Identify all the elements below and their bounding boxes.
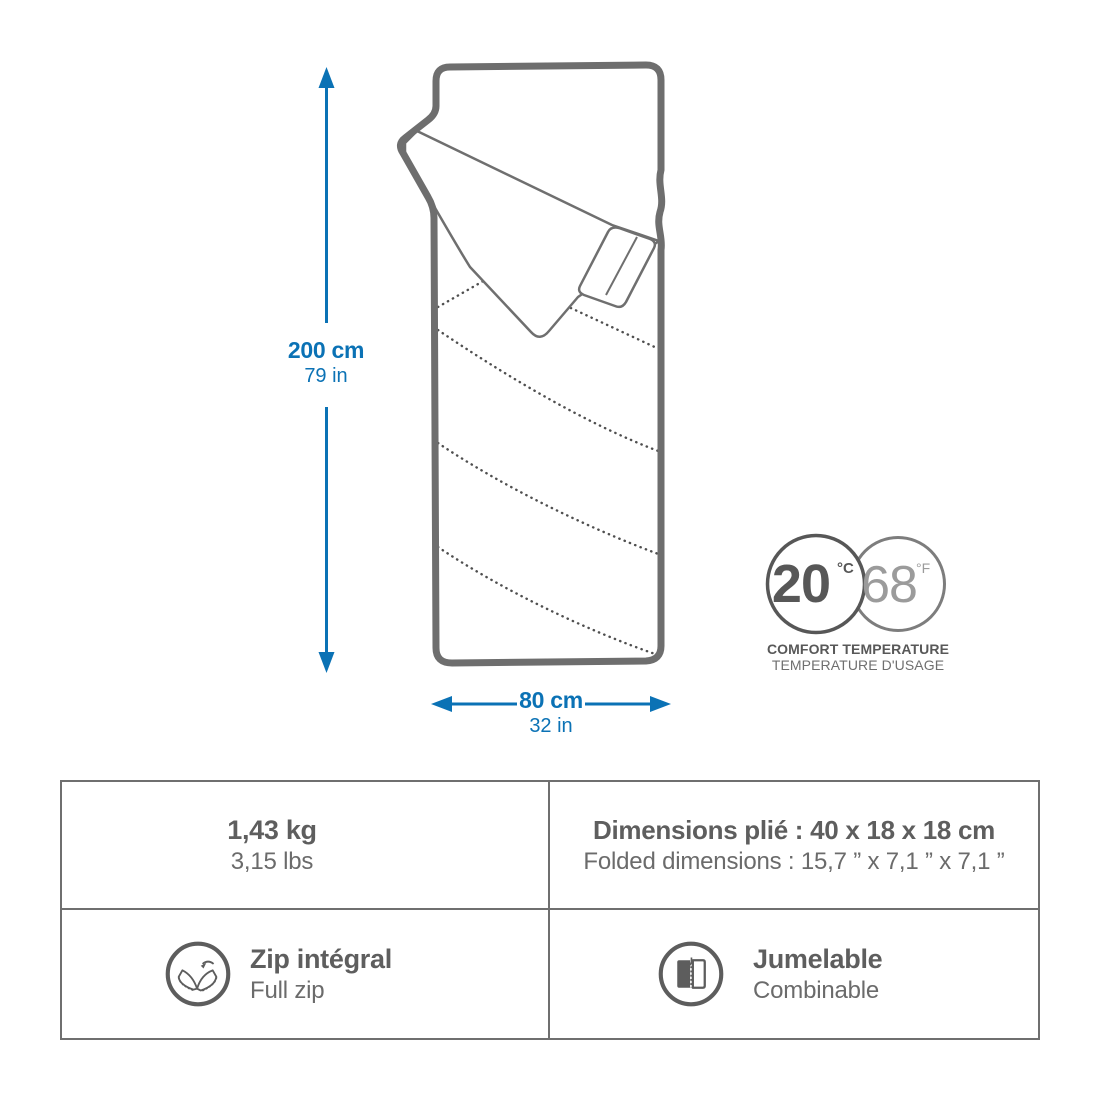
pairable-icon <box>658 941 724 1007</box>
arrow-down-icon <box>319 652 335 673</box>
quilt-stitch-line <box>438 443 661 555</box>
arrow-right-icon <box>650 696 671 712</box>
width-metric: 80 cm <box>471 688 631 713</box>
temperature-caption-fr: TEMPERATURE D'USAGE <box>723 657 993 673</box>
pairable-label-fr: Jumelable <box>753 943 882 976</box>
celsius-value: 20 <box>762 557 830 611</box>
temperature-caption: COMFORT TEMPERATURE TEMPERATURE D'USAGE <box>723 641 993 673</box>
height-metric: 200 cm <box>246 338 406 363</box>
fahrenheit-value: 68 <box>860 558 918 612</box>
product-infographic: 200 cm 79 in 80 cm 32 in 20 °C 68 °F COM… <box>0 0 1100 1100</box>
folded-dimensions-en: Folded dimensions : 15,7 ” x 7,1 ” x 7,1… <box>583 847 1004 877</box>
width-dimension-label: 80 cm 32 in <box>471 688 631 739</box>
weight-metric: 1,43 kg <box>227 814 316 847</box>
full-zip-icon <box>165 941 231 1007</box>
arrow-left-icon <box>431 696 452 712</box>
pairable-cell: Jumelable Combinable <box>550 910 1038 1038</box>
height-imperial: 79 in <box>246 363 406 389</box>
pairable-label-en: Combinable <box>753 976 882 1006</box>
zip-label-en: Full zip <box>250 976 392 1006</box>
folded-dimensions-fr: Dimensions plié : 40 x 18 x 18 cm <box>583 814 1004 847</box>
spec-table: 1,43 kg 3,15 lbs Dimensions plié : 40 x … <box>60 780 1040 1040</box>
width-imperial: 32 in <box>471 713 631 739</box>
weight-cell: 1,43 kg 3,15 lbs <box>62 782 550 910</box>
height-dimension-label: 200 cm 79 in <box>246 338 406 389</box>
fahrenheit-unit: °F <box>916 560 930 576</box>
celsius-unit: °C <box>837 560 854 577</box>
temperature-caption-en: COMFORT TEMPERATURE <box>723 641 993 657</box>
arrow-up-icon <box>319 67 335 88</box>
quilt-stitch-line <box>438 547 658 655</box>
zip-label-fr: Zip intégral <box>250 943 392 976</box>
full-zip-cell: Zip intégral Full zip <box>62 910 550 1038</box>
folded-dimensions-cell: Dimensions plié : 40 x 18 x 18 cm Folded… <box>550 782 1038 910</box>
weight-imperial: 3,15 lbs <box>227 847 316 877</box>
quilt-stitch-line <box>438 330 661 452</box>
